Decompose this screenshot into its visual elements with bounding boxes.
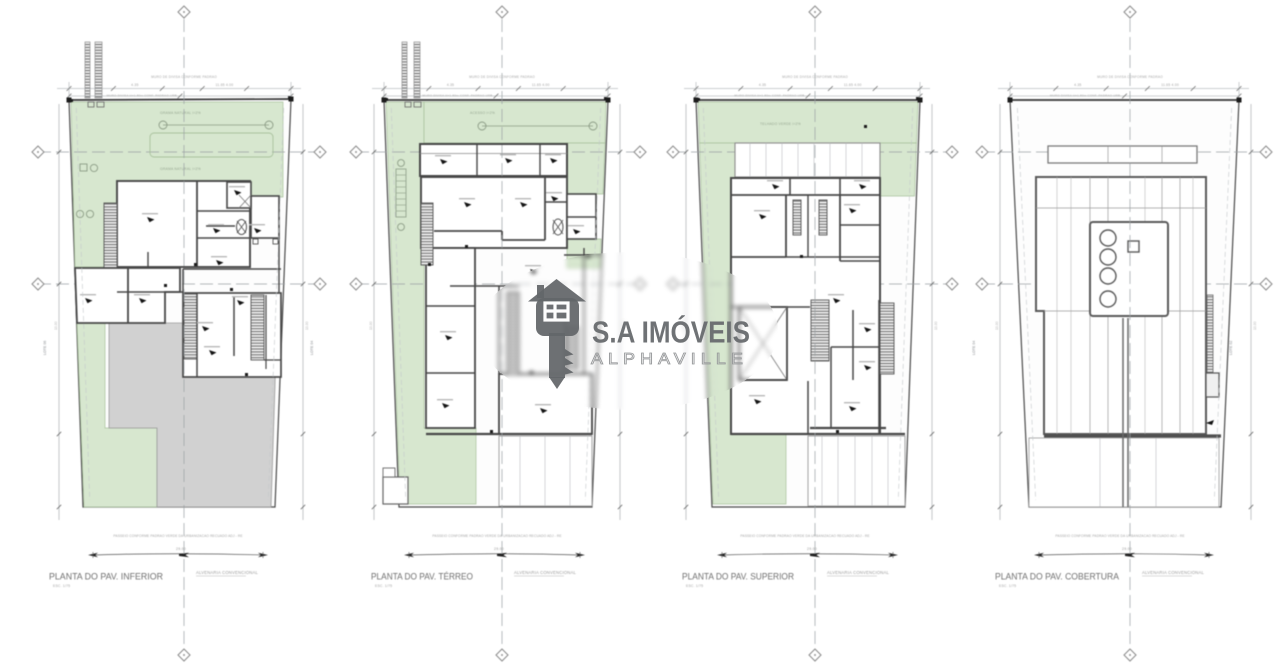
svg-text:ALPHAVILLE: ALPHAVILLE	[591, 351, 748, 368]
svg-text:S.A IMÓVEIS: S.A IMÓVEIS	[592, 314, 750, 350]
